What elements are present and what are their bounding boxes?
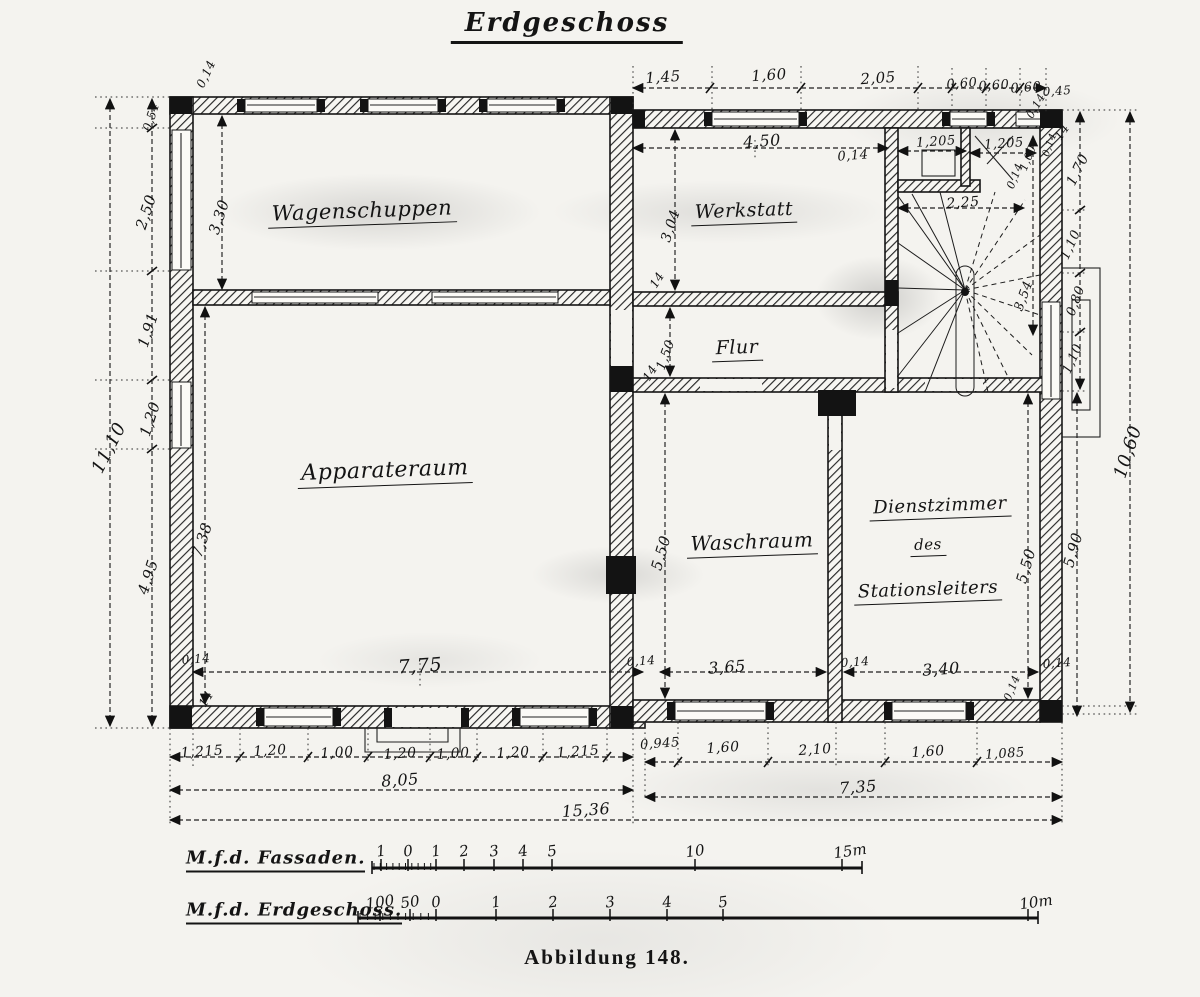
- walls: [170, 97, 1062, 728]
- newel-post: [961, 288, 969, 296]
- fixtures: [365, 136, 1100, 752]
- floor-plan-drawing: [0, 0, 1200, 997]
- scanned-floor-plan-page: WagenschuppenApparateraumWerkstattFlurWa…: [0, 0, 1200, 997]
- scale-label-ground-floor: M.f.d. Erdgeschoss.: [186, 900, 402, 925]
- figure-caption: Abbildung 148.: [524, 945, 690, 970]
- staircase: [898, 192, 1040, 396]
- scale-bars: [358, 859, 1038, 924]
- scale-label-facades: M.f.d. Fassaden.: [186, 848, 365, 873]
- drawing-title: Erdgeschoss: [451, 8, 683, 44]
